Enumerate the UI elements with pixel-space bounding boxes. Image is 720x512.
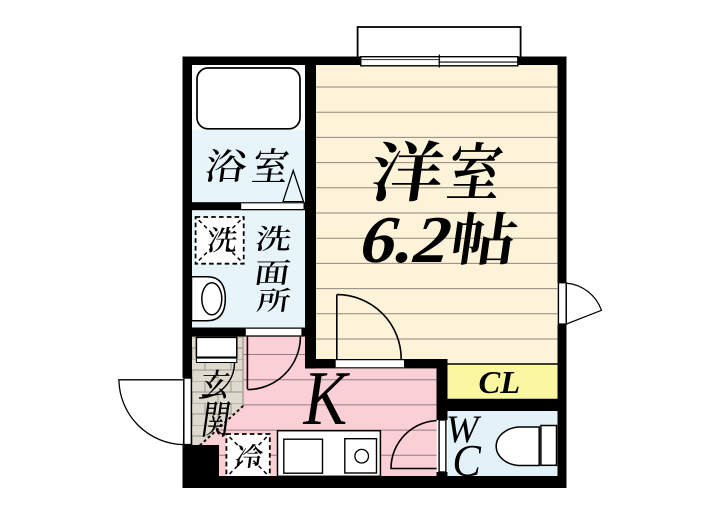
svg-text:6.2: 6.2	[357, 202, 455, 277]
svg-text:C: C	[452, 435, 482, 487]
svg-text:K: K	[303, 356, 351, 441]
svg-text:CL: CL	[479, 364, 521, 400]
